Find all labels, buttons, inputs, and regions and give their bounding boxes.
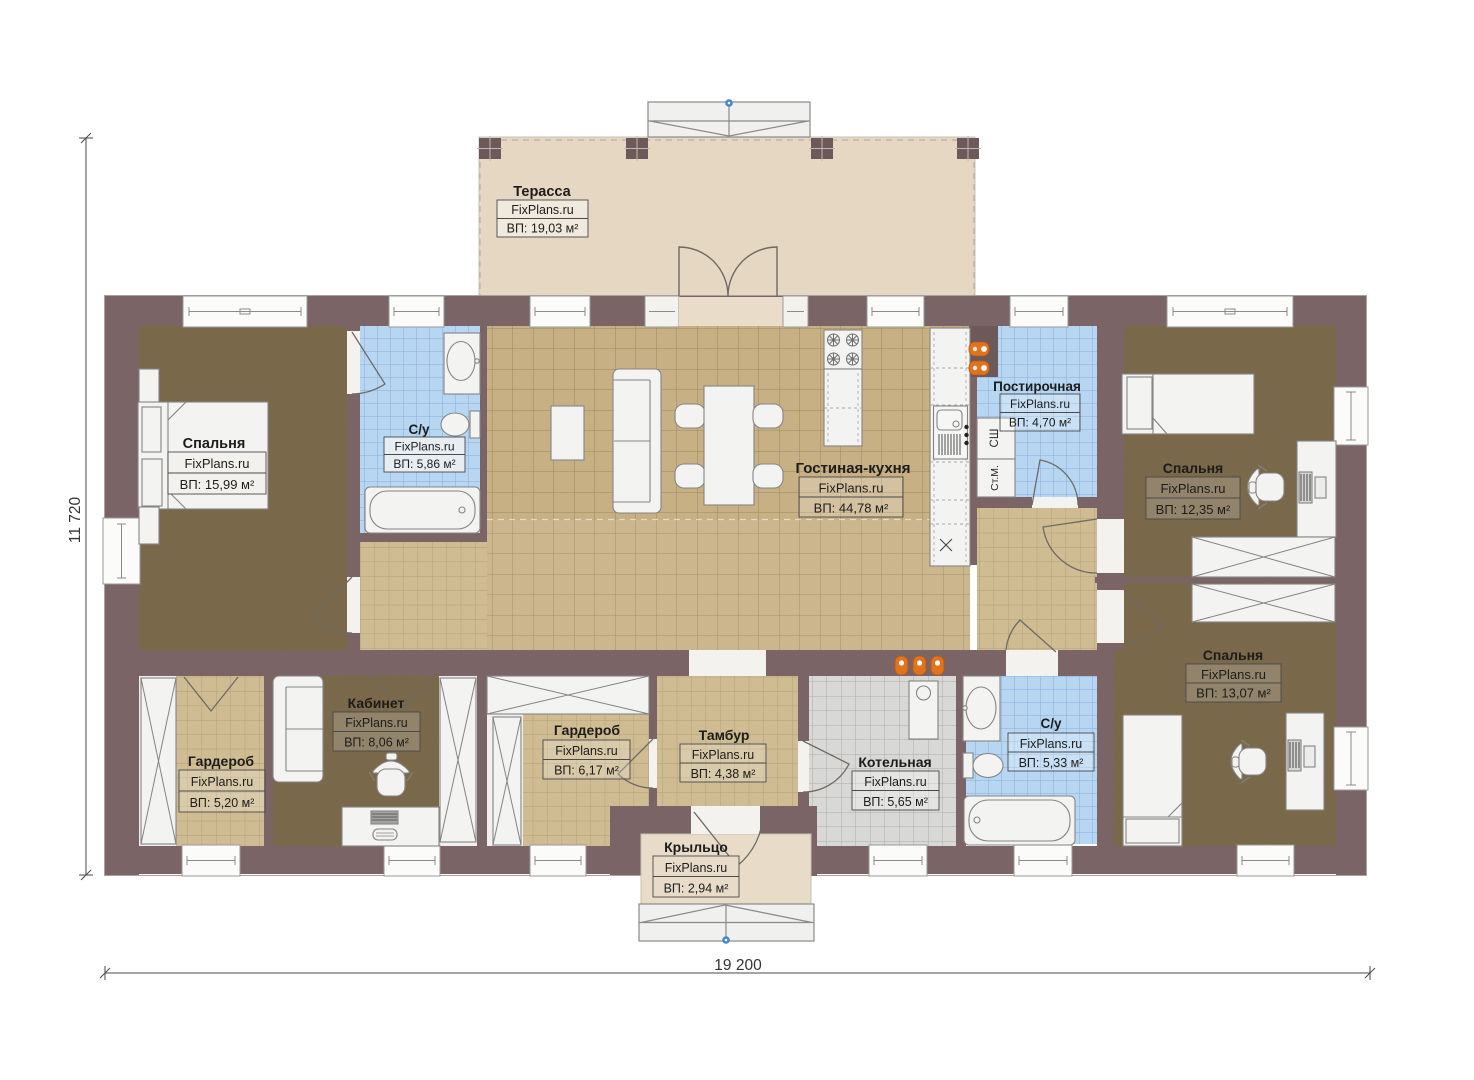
svg-text:FixPlans.ru: FixPlans.ru bbox=[191, 775, 254, 789]
svg-text:СШ: СШ bbox=[989, 429, 1001, 448]
svg-text:FixPlans.ru: FixPlans.ru bbox=[394, 440, 454, 454]
svg-text:FixPlans.ru: FixPlans.ru bbox=[184, 456, 249, 471]
svg-text:Спальня: Спальня bbox=[1163, 460, 1223, 476]
svg-text:ВП: 8,06 м²: ВП: 8,06 м² bbox=[344, 736, 409, 750]
svg-text:Кабинет: Кабинет bbox=[348, 695, 405, 711]
svg-text:Спальня: Спальня bbox=[183, 436, 246, 452]
svg-text:Ст.М.: Ст.М. bbox=[989, 465, 1001, 491]
svg-text:FixPlans.ru: FixPlans.ru bbox=[1160, 481, 1225, 496]
svg-text:ВП: 5,33 м²: ВП: 5,33 м² bbox=[1019, 756, 1084, 770]
svg-text:FixPlans.ru: FixPlans.ru bbox=[555, 744, 618, 758]
svg-text:ВП: 5,86 м²: ВП: 5,86 м² bbox=[393, 457, 455, 471]
svg-text:С/у: С/у bbox=[408, 422, 430, 437]
svg-text:ВП: 5,65 м²: ВП: 5,65 м² bbox=[863, 795, 928, 809]
svg-text:FixPlans.ru: FixPlans.ru bbox=[1020, 737, 1083, 751]
svg-text:Гостиная-кухня: Гостиная-кухня bbox=[796, 460, 911, 477]
svg-text:FixPlans.ru: FixPlans.ru bbox=[511, 203, 574, 217]
svg-text:Спальня: Спальня bbox=[1203, 647, 1263, 663]
svg-text:Терасса: Терасса bbox=[513, 184, 571, 200]
svg-text:ВП: 15,99 м²: ВП: 15,99 м² bbox=[180, 477, 255, 492]
svg-text:FixPlans.ru: FixPlans.ru bbox=[864, 775, 927, 789]
svg-text:FixPlans.ru: FixPlans.ru bbox=[345, 716, 408, 730]
svg-text:ВП: 4,38 м²: ВП: 4,38 м² bbox=[691, 767, 756, 781]
svg-text:ВП: 19,03 м²: ВП: 19,03 м² bbox=[507, 222, 579, 236]
svg-text:ВП: 5,20 м²: ВП: 5,20 м² bbox=[190, 796, 255, 810]
svg-text:Крыльцо: Крыльцо bbox=[664, 839, 728, 855]
svg-text:FixPlans.ru: FixPlans.ru bbox=[692, 748, 755, 762]
svg-text:FixPlans.ru: FixPlans.ru bbox=[1201, 667, 1266, 682]
svg-text:FixPlans.ru: FixPlans.ru bbox=[1010, 397, 1070, 411]
svg-text:Тамбур: Тамбур bbox=[699, 727, 750, 743]
svg-text:Гардероб: Гардероб bbox=[554, 722, 621, 738]
svg-text:ВП: 12,35 м²: ВП: 12,35 м² bbox=[1156, 502, 1231, 517]
svg-text:ВП: 2,94 м²: ВП: 2,94 м² bbox=[664, 882, 729, 896]
svg-text:ВП: 6,17 м²: ВП: 6,17 м² bbox=[554, 764, 619, 778]
svg-text:ВП: 44,78 м²: ВП: 44,78 м² bbox=[814, 501, 889, 516]
svg-text:Постирочная: Постирочная bbox=[993, 379, 1081, 394]
svg-text:С/у: С/у bbox=[1040, 716, 1062, 731]
svg-text:ВП: 4,70 м²: ВП: 4,70 м² bbox=[1009, 416, 1071, 430]
svg-text:FixPlans.ru: FixPlans.ru bbox=[665, 861, 728, 875]
svg-text:Котельная: Котельная bbox=[858, 754, 931, 770]
svg-text:19 200: 19 200 bbox=[714, 957, 762, 974]
svg-text:Гардероб: Гардероб bbox=[188, 753, 255, 769]
svg-text:ВП: 13,07 м²: ВП: 13,07 м² bbox=[1196, 686, 1271, 701]
svg-text:11 720: 11 720 bbox=[67, 496, 84, 543]
svg-text:FixPlans.ru: FixPlans.ru bbox=[818, 481, 883, 496]
